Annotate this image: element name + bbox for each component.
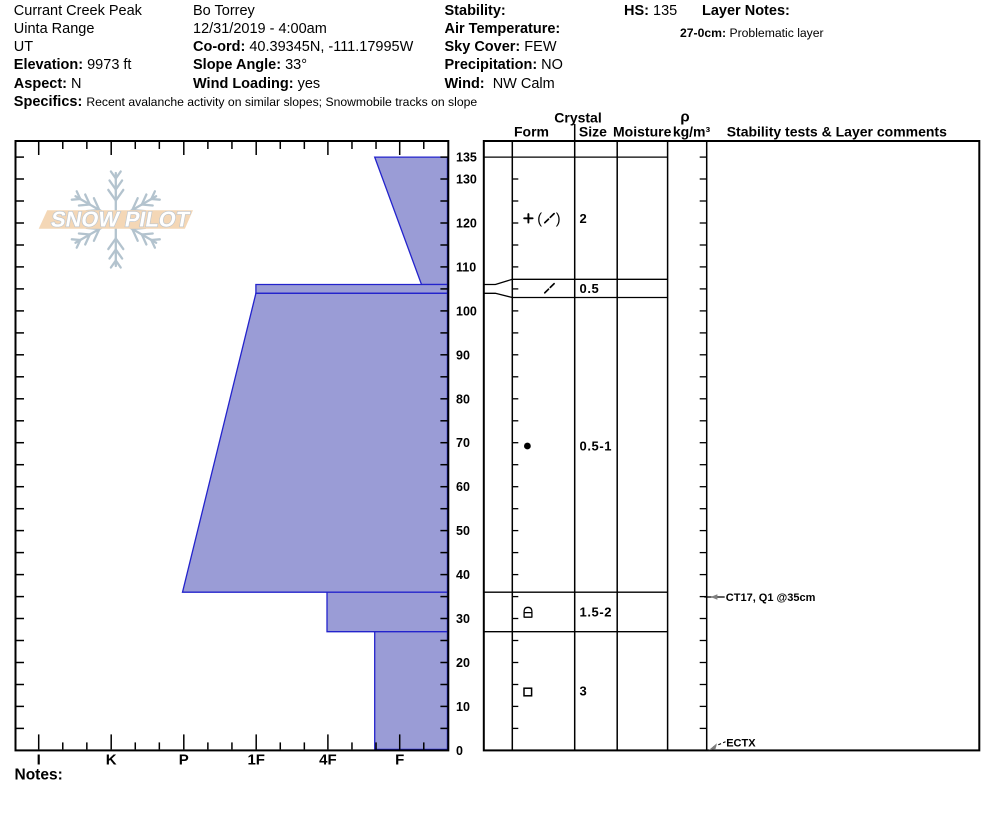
svg-text:3: 3 (580, 684, 588, 699)
svg-text:130: 130 (456, 173, 477, 187)
svg-text:70: 70 (456, 436, 470, 450)
svg-text:50: 50 (456, 524, 470, 538)
svg-text:Size: Size (579, 123, 607, 139)
svg-text:Moisture: Moisture (613, 123, 672, 139)
svg-text:K: K (106, 752, 117, 769)
svg-text:1.5-2: 1.5-2 (580, 604, 613, 619)
svg-text:Stability tests & Layer commen: Stability tests & Layer comments (727, 124, 947, 140)
svg-text:SNOW PILOT: SNOW PILOT (49, 207, 191, 232)
svg-text:(: ( (537, 211, 542, 227)
svg-text:Notes:: Notes: (15, 767, 63, 784)
svg-text:100: 100 (456, 304, 477, 318)
svg-text:90: 90 (456, 348, 470, 362)
svg-text:60: 60 (456, 480, 470, 494)
svg-text:20: 20 (456, 656, 470, 670)
svg-text:80: 80 (456, 392, 470, 406)
svg-text:ECTX: ECTX (726, 737, 756, 749)
svg-text:0.5: 0.5 (580, 281, 600, 296)
svg-text:2: 2 (580, 211, 588, 226)
svg-text:0.5-1: 0.5-1 (580, 439, 613, 454)
svg-text:kg/m³: kg/m³ (673, 123, 711, 139)
svg-text:0: 0 (456, 744, 463, 758)
svg-text:CT17, Q1 @35cm: CT17, Q1 @35cm (726, 592, 816, 604)
svg-text:10: 10 (456, 700, 470, 714)
svg-text:1F: 1F (247, 752, 265, 769)
svg-text:135: 135 (456, 151, 477, 165)
svg-text:30: 30 (456, 612, 470, 626)
svg-text:P: P (179, 752, 189, 769)
svg-text:Form: Form (514, 123, 549, 139)
svg-text:120: 120 (456, 217, 477, 231)
svg-text:40: 40 (456, 568, 470, 582)
svg-text:110: 110 (456, 260, 476, 274)
svg-text:F: F (395, 752, 404, 769)
svg-text:4F: 4F (319, 752, 337, 769)
svg-text:): ) (556, 211, 561, 227)
